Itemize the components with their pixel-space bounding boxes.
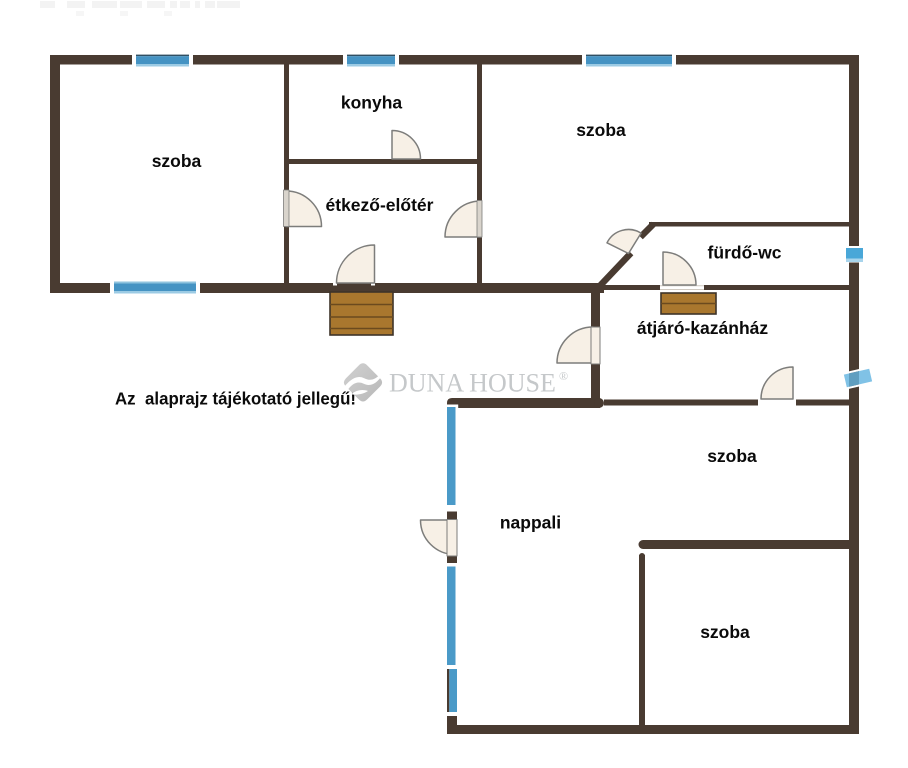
svg-text:Az alaprajz tájékotató jelleg: Az alaprajz tájékotató jellegű! <box>115 389 356 409</box>
svg-text:konyha: konyha <box>341 93 403 113</box>
svg-text:szoba: szoba <box>576 120 626 140</box>
svg-text:szoba: szoba <box>700 622 750 642</box>
svg-text:fürdő-wc: fürdő-wc <box>708 243 782 263</box>
svg-text:átjáró-kazánház: átjáró-kazánház <box>637 318 769 338</box>
svg-text:DUNA HOUSE: DUNA HOUSE <box>389 369 556 398</box>
svg-text:szoba: szoba <box>707 446 757 466</box>
svg-text:szoba: szoba <box>152 151 202 171</box>
svg-text:nappali: nappali <box>500 513 561 533</box>
svg-text:®: ® <box>559 369 568 383</box>
svg-text:étkező-előtér: étkező-előtér <box>326 195 434 215</box>
